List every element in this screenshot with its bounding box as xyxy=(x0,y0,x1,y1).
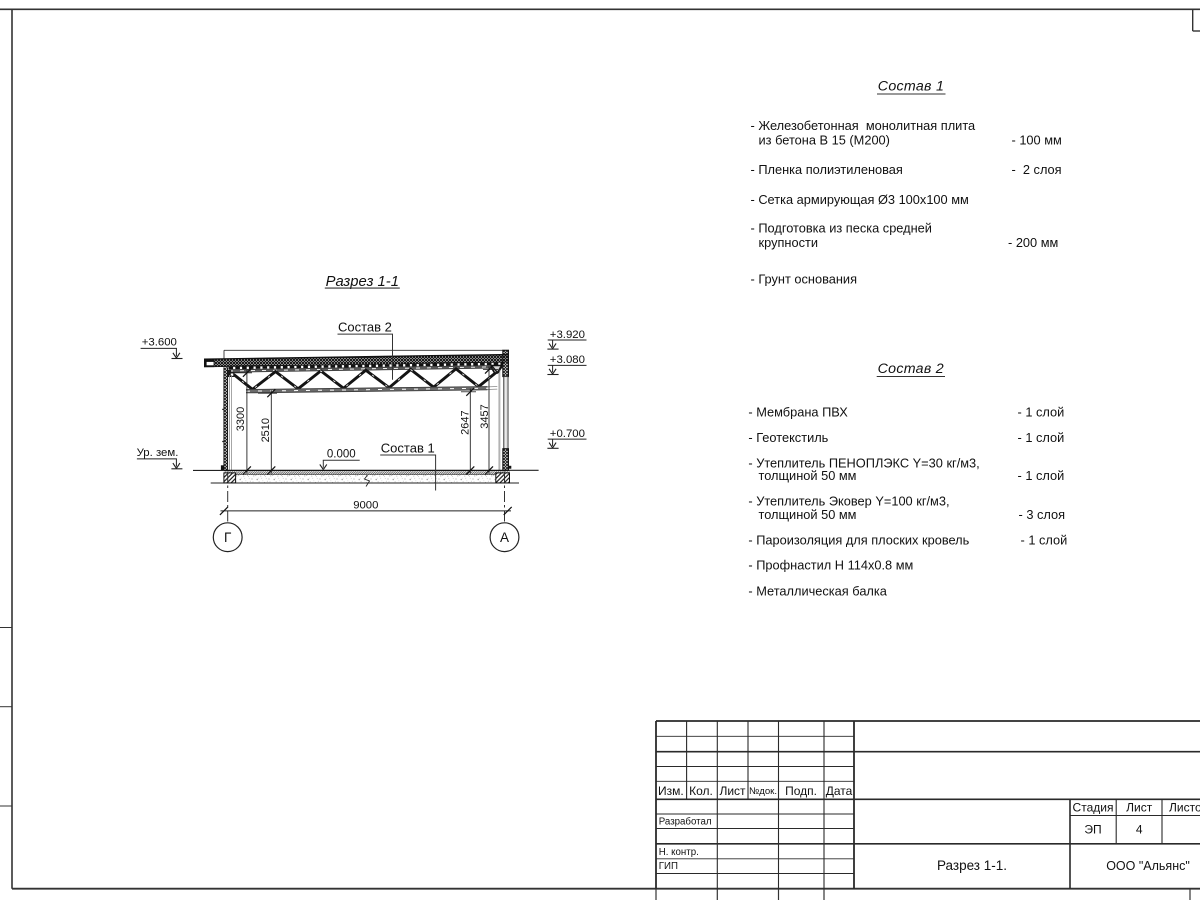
svg-text:толщиной 50 мм: толщиной 50 мм xyxy=(759,507,857,522)
svg-text:- 3 слоя: - 3 слоя xyxy=(1019,507,1066,522)
svg-text:2510: 2510 xyxy=(260,418,272,442)
svg-text:Ур. зем.: Ур. зем. xyxy=(137,447,179,459)
svg-text:- 1 слой: - 1 слой xyxy=(1018,468,1065,483)
svg-text:- 1 слой: - 1 слой xyxy=(1018,404,1065,419)
svg-text:+3.920: +3.920 xyxy=(550,329,585,341)
svg-text:3300: 3300 xyxy=(235,407,247,431)
svg-text:- Металлическая балка: - Металлическая балка xyxy=(748,584,887,599)
svg-text:ГИП: ГИП xyxy=(659,861,678,872)
svg-text:- Железобетонная монолитная п: - Железобетонная монолитная плита xyxy=(751,118,977,133)
svg-text:- 100 мм: - 100 мм xyxy=(1012,133,1062,148)
svg-text:Состав 1: Состав 1 xyxy=(381,440,435,455)
svg-text:А: А xyxy=(500,530,509,545)
svg-text:Состав 2: Состав 2 xyxy=(338,320,392,335)
svg-text:+3.600: +3.600 xyxy=(142,336,177,348)
svg-text:- Пленка полиэтиленовая: - Пленка полиэтиленовая xyxy=(751,162,903,177)
svg-text:+0.700: +0.700 xyxy=(550,428,585,440)
svg-text:- Пароизоляция для плоских кро: - Пароизоляция для плоских кровель xyxy=(748,533,969,548)
svg-text:Состав 2: Состав 2 xyxy=(878,361,944,377)
svg-text:Листов: Листов xyxy=(1169,801,1200,815)
svg-text:Разрез 1-1: Разрез 1-1 xyxy=(326,274,399,290)
svg-text:№док.: №док. xyxy=(749,786,777,797)
svg-text:- 2 слоя: - 2 слоя xyxy=(1012,162,1062,177)
svg-text:+3.080: +3.080 xyxy=(550,354,585,366)
svg-text:Кол.: Кол. xyxy=(689,784,713,798)
svg-text:Лист: Лист xyxy=(1126,801,1153,815)
svg-text:Состав 1: Состав 1 xyxy=(878,79,944,95)
svg-text:крупности: крупности xyxy=(759,235,819,250)
svg-text:Стадия: Стадия xyxy=(1073,801,1114,815)
svg-text:- 1 слой: - 1 слой xyxy=(1021,533,1068,548)
svg-text:Г: Г xyxy=(224,530,232,545)
svg-text:- Сетка армирующая Ø3 100х100: - Сетка армирующая Ø3 100х100 мм xyxy=(751,192,969,207)
svg-text:из бетона В 15 (М200): из бетона В 15 (М200) xyxy=(759,133,890,148)
svg-text:Разрез 1-1.: Разрез 1-1. xyxy=(937,858,1007,873)
svg-text:ООО "Альянс": ООО "Альянс" xyxy=(1106,859,1190,873)
svg-text:толщиной 50 мм: толщиной 50 мм xyxy=(759,468,857,483)
svg-text:9000: 9000 xyxy=(353,500,378,512)
svg-text:Дата: Дата xyxy=(826,784,853,798)
svg-text:Н. контр.: Н. контр. xyxy=(659,847,699,858)
svg-text:Изм.: Изм. xyxy=(658,784,684,798)
svg-text:4: 4 xyxy=(1136,823,1143,837)
svg-text:2647: 2647 xyxy=(460,410,472,434)
svg-text:- 1 слой: - 1 слой xyxy=(1018,430,1065,445)
svg-text:3457: 3457 xyxy=(479,404,491,428)
svg-text:- Геотекстиль: - Геотекстиль xyxy=(748,430,828,445)
svg-text:- 200 мм: - 200 мм xyxy=(1008,235,1058,250)
svg-text:- Подготовка из песка средней: - Подготовка из песка средней xyxy=(751,221,932,236)
svg-text:Подп.: Подп. xyxy=(785,784,817,798)
svg-text:- Профнастил Н 114х0.8 мм: - Профнастил Н 114х0.8 мм xyxy=(748,558,913,573)
svg-text:- Грунт основания: - Грунт основания xyxy=(751,271,858,286)
svg-text:- Мембрана ПВХ: - Мембрана ПВХ xyxy=(748,404,848,419)
svg-text:Лист: Лист xyxy=(719,784,746,798)
svg-text:ЭП: ЭП xyxy=(1084,823,1101,837)
svg-text:0.000: 0.000 xyxy=(327,449,356,461)
svg-text:Разработал: Разработал xyxy=(659,817,712,828)
